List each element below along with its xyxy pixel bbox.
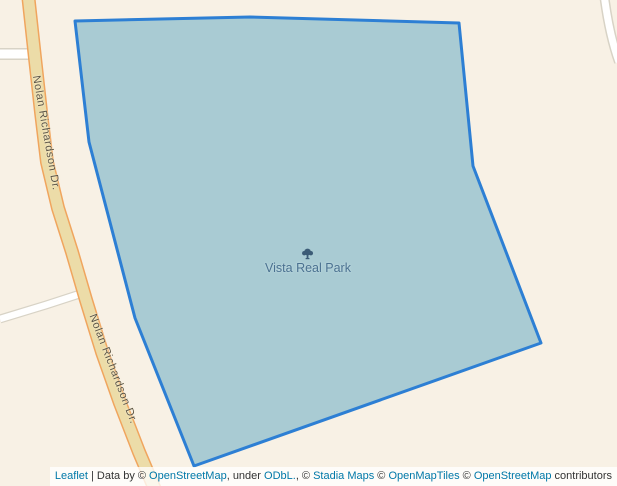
attribution-link-openstreetmap-2[interactable]: OpenStreetMap: [474, 470, 552, 482]
attribution-link-openstreetmap-1[interactable]: OpenStreetMap: [149, 470, 227, 482]
attribution-text: ©: [460, 470, 474, 482]
attribution-link-stadia-maps[interactable]: Stadia Maps: [313, 470, 374, 482]
map-canvas[interactable]: Nolan Richardson Dr. Nolan Richardson Dr…: [0, 0, 617, 486]
attribution-text: , under: [227, 470, 264, 482]
attribution-link-leaflet[interactable]: Leaflet: [55, 470, 88, 482]
park-polygon[interactable]: [75, 17, 541, 466]
minor-road: [0, 292, 86, 319]
attribution-text: , ©: [296, 470, 313, 482]
attribution-text: contributors: [551, 470, 612, 482]
attribution-bar: Leaflet | Data by © OpenStreetMap, under…: [50, 467, 617, 486]
map-tile-layer: [0, 0, 617, 486]
attribution-text: | Data by ©: [88, 470, 149, 482]
attribution-text: ©: [374, 470, 388, 482]
attribution-link-openmaptiles[interactable]: OpenMapTiles: [388, 470, 459, 482]
attribution-link-odbl[interactable]: ODbL.: [264, 470, 296, 482]
